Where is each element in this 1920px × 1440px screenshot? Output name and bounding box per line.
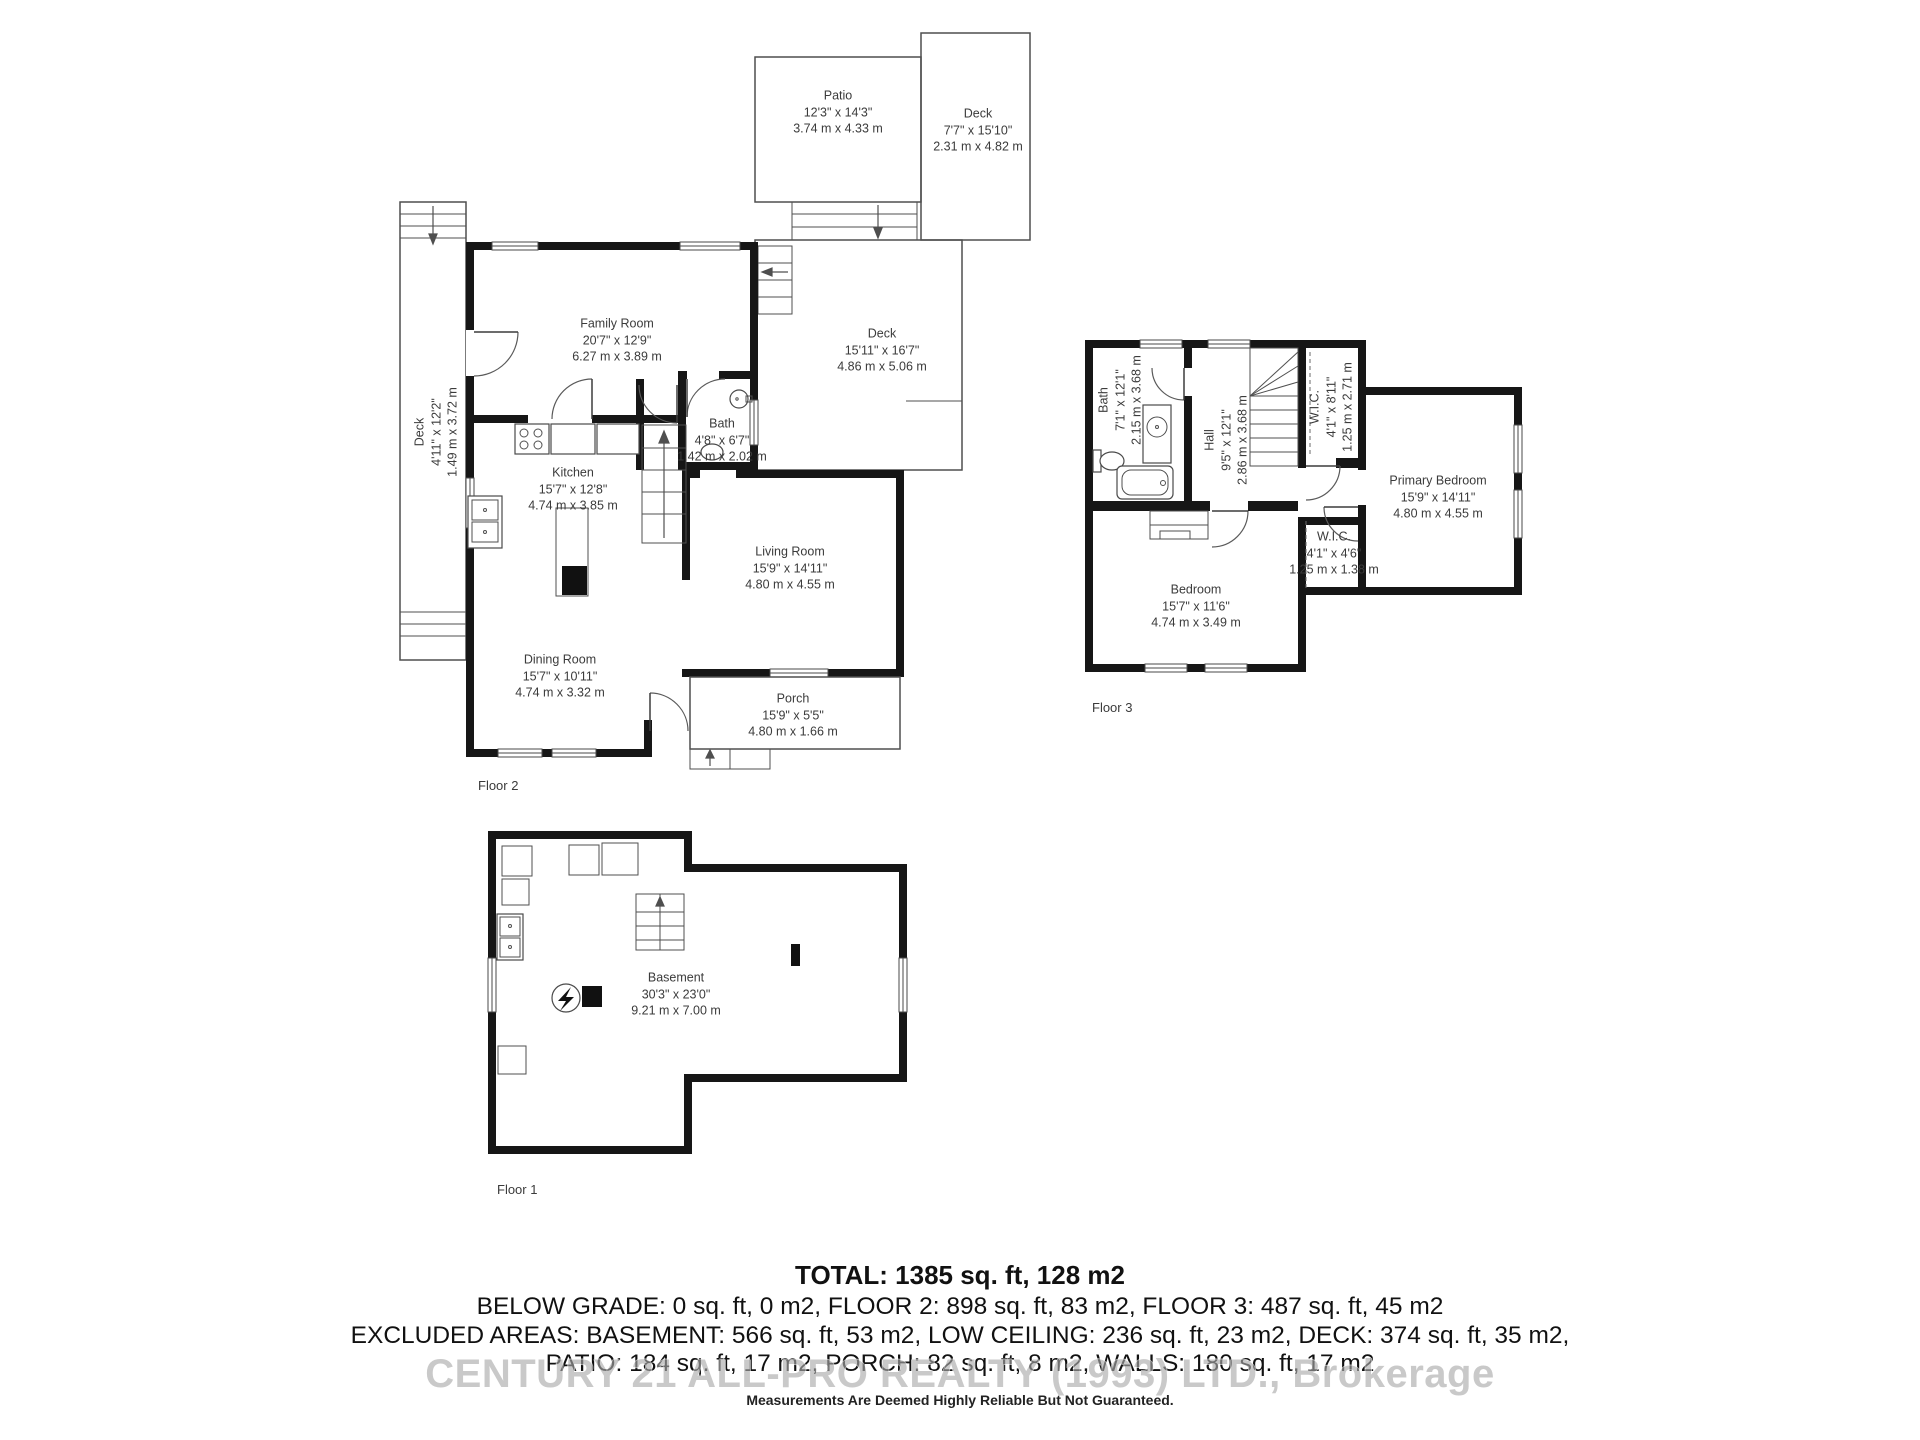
vanity-sink-icon: [1143, 405, 1171, 463]
room-label-dining-room: Dining Room 15'7" x 10'11" 4.74 m x 3.32…: [515, 651, 605, 701]
room-dim-metric: 4.74 m x 3.49 m: [1151, 614, 1241, 631]
room-name: Primary Bedroom: [1389, 472, 1486, 489]
window: [1514, 425, 1522, 473]
room-dim-imperial: 9'5" x 12'1": [1218, 395, 1235, 485]
stairs-icon: [1250, 348, 1298, 466]
room-dim-imperial: 7'7" x 15'10": [933, 122, 1023, 139]
furnace-icon: [552, 984, 602, 1012]
deck-stairs-icon: [758, 246, 792, 314]
door-arc: [552, 379, 592, 419]
room-dim-imperial: 15'7" x 11'6": [1151, 598, 1241, 615]
room-label-bath-floor3: Bath 7'1" x 12'1" 2.15 m x 3.68 m: [1095, 355, 1145, 445]
room-dim-metric: 2.31 m x 4.82 m: [933, 138, 1023, 155]
room-label-hall: Hall 9'5" x 12'1" 2.86 m x 3.68 m: [1201, 395, 1251, 485]
room-dim-metric: 4.74 m x 3.85 m: [528, 497, 618, 514]
room-dim-imperial: 15'9" x 14'11": [745, 560, 835, 577]
brokerage-watermark: CENTURY 21 ALL-PRO REALTY (1993) LTD., B…: [0, 1352, 1920, 1397]
room-label-bath-floor2: Bath 4'8" x 6'7" 1.42 m x 2.02 m: [677, 415, 767, 465]
room-label-patio: Patio 12'3" x 14'3" 3.74 m x 4.33 m: [793, 87, 883, 137]
stove-icon: [515, 424, 549, 454]
kitchen-counter: [597, 424, 639, 454]
room-dim-imperial: 4'11" x 12'2": [428, 387, 445, 477]
room-name: Dining Room: [515, 651, 605, 668]
chimney: [791, 944, 800, 966]
window: [770, 669, 828, 677]
room-label-deck-upper: Deck 7'7" x 15'10" 2.31 m x 4.82 m: [933, 105, 1023, 155]
room-dim-metric: 1.25 m x 2.71 m: [1339, 362, 1356, 452]
appliance-box: [502, 879, 529, 905]
room-name: Basement: [631, 969, 721, 986]
bathtub-icon: [1117, 466, 1173, 499]
room-name: Bath: [677, 415, 767, 432]
room-dim-metric: 2.15 m x 3.68 m: [1128, 355, 1145, 445]
room-name: Bath: [1095, 355, 1112, 445]
room-dim-imperial: 4'8" x 6'7": [677, 432, 767, 449]
room-dim-imperial: 15'7" x 12'8": [528, 481, 618, 498]
patio-steps: [792, 202, 917, 240]
room-dim-imperial: 4'1" x 4'6": [1289, 545, 1379, 562]
window: [899, 958, 907, 1012]
floorplan-page: Patio 12'3" x 14'3" 3.74 m x 4.33 m Deck…: [0, 0, 1920, 1440]
room-label-wic-large: W.I.C. 4'1" x 8'11" 1.25 m x 2.71 m: [1306, 362, 1356, 452]
room-dim-metric: 1.49 m x 3.72 m: [444, 387, 461, 477]
room-dim-imperial: 4'1" x 8'11": [1323, 362, 1340, 452]
room-name: Hall: [1201, 395, 1218, 485]
appliance-box: [569, 845, 599, 875]
appliance-box: [502, 846, 532, 876]
bath-sink-icon: [730, 390, 752, 408]
room-name: Deck: [411, 387, 428, 477]
window: [1140, 340, 1182, 348]
room-dim-metric: 4.86 m x 5.06 m: [837, 358, 927, 375]
door-gap: [687, 371, 719, 379]
room-label-living-room: Living Room 15'9" x 14'11" 4.80 m x 4.55…: [745, 543, 835, 593]
room-dim-imperial: 15'9" x 14'11": [1389, 489, 1486, 506]
room-dim-imperial: 15'9" x 5'5": [748, 707, 838, 724]
room-name: Living Room: [745, 543, 835, 560]
door-gap: [466, 330, 474, 376]
door-arc: [1306, 466, 1340, 500]
storage-box: [498, 1046, 526, 1074]
door-arc: [687, 379, 725, 417]
room-label-wic-small: W.I.C. 4'1" x 4'6" 1.25 m x 1.38 m: [1289, 528, 1379, 578]
room-dim-metric: 4.80 m x 1.66 m: [748, 723, 838, 740]
door-arc: [650, 693, 688, 731]
window: [488, 958, 496, 1012]
room-name: Patio: [793, 87, 883, 104]
summary-line-grade-floors: BELOW GRADE: 0 sq. ft, 0 m2, FLOOR 2: 89…: [0, 1293, 1920, 1321]
room-label-deck-left: Deck 4'11" x 12'2" 1.49 m x 3.72 m: [411, 387, 461, 477]
room-name: Deck: [837, 325, 927, 342]
laundry-sink-icon: [497, 914, 523, 960]
room-dim-metric: 4.74 m x 3.32 m: [515, 684, 605, 701]
room-label-primary-bedroom: Primary Bedroom 15'9" x 14'11" 4.80 m x …: [1389, 472, 1486, 522]
window: [552, 749, 596, 757]
window: [680, 242, 740, 250]
floor3-tag: Floor 3: [1092, 700, 1132, 715]
room-label-porch: Porch 15'9" x 5'5" 4.80 m x 1.66 m: [748, 690, 838, 740]
floor1-tag: Floor 1: [497, 1182, 537, 1197]
room-dim-metric: 1.42 m x 2.02 m: [677, 448, 767, 465]
room-dim-imperial: 7'1" x 12'1": [1112, 355, 1129, 445]
room-dim-imperial: 20'7" x 12'9": [572, 332, 662, 349]
door-arc: [1212, 511, 1248, 547]
room-name: Porch: [748, 690, 838, 707]
kitchen-sink-icon: [468, 496, 502, 548]
room-name: Bedroom: [1151, 581, 1241, 598]
window: [1145, 664, 1187, 672]
stairs-icon: [636, 894, 684, 950]
room-name: Kitchen: [528, 464, 618, 481]
door-gap: [700, 470, 736, 478]
window: [1205, 664, 1247, 672]
bedroom-closet: [1150, 511, 1208, 539]
room-dim-imperial: 30'3" x 23'0": [631, 986, 721, 1003]
summary-line-excluded: EXCLUDED AREAS: BASEMENT: 566 sq. ft, 53…: [0, 1322, 1920, 1350]
door-gap: [1210, 501, 1248, 511]
floor2-tag: Floor 2: [478, 778, 518, 793]
room-label-basement: Basement 30'3" x 23'0" 9.21 m x 7.00 m: [631, 969, 721, 1019]
appliance-box: [602, 843, 638, 875]
room-name: W.I.C.: [1289, 528, 1379, 545]
room-label-deck-main: Deck 15'11" x 16'7" 4.86 m x 5.06 m: [837, 325, 927, 375]
floorplan-drawing: [0, 0, 1920, 1440]
room-dim-metric: 4.80 m x 4.55 m: [1389, 505, 1486, 522]
door-arc: [1152, 368, 1184, 400]
room-label-bedroom: Bedroom 15'7" x 11'6" 4.74 m x 3.49 m: [1151, 581, 1241, 631]
room-dim-metric: 9.21 m x 7.00 m: [631, 1002, 721, 1019]
room-dim-metric: 2.86 m x 3.68 m: [1234, 395, 1251, 485]
room-label-family-room: Family Room 20'7" x 12'9" 6.27 m x 3.89 …: [572, 315, 662, 365]
measurements-disclaimer: Measurements Are Deemed Highly Reliable …: [0, 1392, 1920, 1408]
window: [492, 242, 538, 250]
kitchen-counter: [551, 424, 595, 454]
room-dim-metric: 4.80 m x 4.55 m: [745, 576, 835, 593]
room-dim-imperial: 15'11" x 16'7": [837, 342, 927, 359]
window: [498, 749, 542, 757]
room-name: W.I.C.: [1306, 362, 1323, 452]
room-dim-imperial: 15'7" x 10'11": [515, 668, 605, 685]
window: [1514, 490, 1522, 538]
room-label-kitchen: Kitchen 15'7" x 12'8" 4.74 m x 3.85 m: [528, 464, 618, 514]
room-dim-metric: 6.27 m x 3.89 m: [572, 348, 662, 365]
door-arc: [474, 332, 518, 376]
kitchen-island: [556, 508, 588, 596]
window: [1208, 340, 1250, 348]
room-dim-metric: 3.74 m x 4.33 m: [793, 120, 883, 137]
room-name: Deck: [933, 105, 1023, 122]
room-dim-metric: 1.25 m x 1.38 m: [1289, 561, 1379, 578]
summary-total: TOTAL: 1385 sq. ft, 128 m2: [0, 1260, 1920, 1291]
room-name: Family Room: [572, 315, 662, 332]
room-dim-imperial: 12'3" x 14'3": [793, 104, 883, 121]
